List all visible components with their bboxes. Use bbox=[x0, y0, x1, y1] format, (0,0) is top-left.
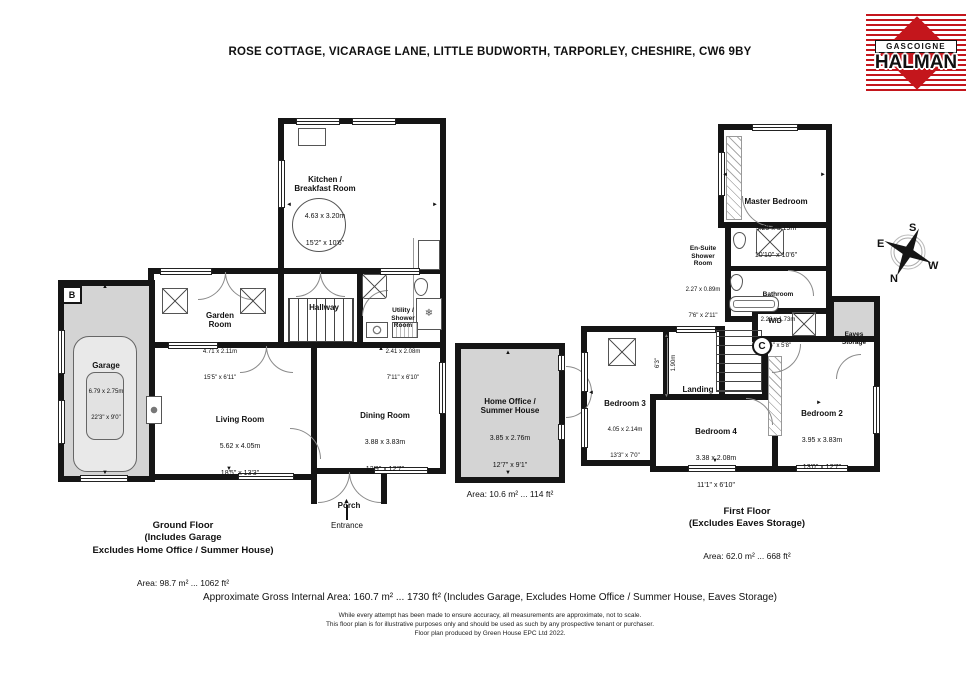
floorplan-page: ROSE COTTAGE, VICARAGE LANE, LITTLE BUDW… bbox=[0, 0, 980, 678]
landing-dim-line bbox=[667, 338, 668, 394]
room-name: Bathroom bbox=[746, 291, 810, 299]
window-icon bbox=[752, 124, 798, 131]
window-icon bbox=[352, 118, 396, 125]
page-title: ROSE COTTAGE, VICARAGE LANE, LITTLE BUDW… bbox=[0, 46, 980, 58]
skylight-icon bbox=[608, 338, 636, 366]
eaves-storage-label: Eaves Storage bbox=[832, 312, 876, 365]
room-name: Garage bbox=[60, 361, 152, 370]
room-name: Utility / Shower Room bbox=[372, 307, 434, 330]
cylinder-label: C bbox=[758, 341, 765, 352]
dimension-arrow-icon: ▼ bbox=[102, 470, 108, 476]
window-icon bbox=[296, 118, 340, 125]
room-imperial: 13'3" x 7'0" bbox=[583, 453, 667, 460]
room-name: Hallway bbox=[294, 303, 354, 312]
room-name: Eaves Storage bbox=[832, 331, 876, 346]
wd-label: W/D bbox=[758, 318, 792, 326]
hallway-label: Hallway bbox=[294, 284, 354, 331]
room-name: Home Office / Summer House bbox=[458, 397, 562, 416]
room-imperial: 7'11" x 6'10" bbox=[372, 375, 434, 382]
disclaimer-line2: This floor plan is for illustrative purp… bbox=[0, 621, 980, 629]
dim-arrow-icon: ▲ bbox=[664, 333, 669, 339]
room-imperial: 22'3" x 9'0" bbox=[60, 415, 152, 422]
logo-bottom-text: HALMAN bbox=[866, 52, 966, 74]
room-imperial: 18'5" x 13'3" bbox=[175, 470, 305, 478]
window-icon bbox=[380, 268, 420, 275]
gross-area-text: Approximate Gross Internal Area: 160.7 m… bbox=[0, 592, 980, 604]
landing-dim-imperial: 6'3" bbox=[655, 341, 661, 385]
room-name: Kitchen / Breakfast Room bbox=[265, 175, 385, 194]
dimension-arrow-icon: ▲ bbox=[102, 284, 108, 290]
room-metric: 6.79 x 2.75m bbox=[60, 389, 152, 396]
dining-label: Dining Room 3.88 x 3.83m 12'9" x 12'7" bbox=[330, 392, 440, 493]
disclaimer-line3: Floor plan produced by Green House EPC L… bbox=[0, 630, 980, 638]
dimension-arrow-icon: ▼ bbox=[712, 458, 718, 464]
compass-n: N bbox=[890, 273, 898, 285]
room-metric: 3.88 x 3.83m bbox=[330, 439, 440, 447]
room-metric: 2.27 x 0.89m bbox=[672, 287, 734, 294]
window-icon bbox=[160, 268, 212, 275]
room-imperial: 15'5" x 6'11" bbox=[178, 375, 262, 382]
dimension-arrow-icon: ▲ bbox=[505, 350, 511, 356]
boiler-label: B bbox=[69, 290, 76, 300]
room-imperial: 13'0" x 12'7" bbox=[766, 464, 878, 472]
room-name: Bedroom 3 bbox=[583, 399, 667, 408]
window-icon bbox=[80, 475, 128, 482]
dimension-arrow-icon: ◄ bbox=[722, 172, 728, 178]
bedroom3-label: Bedroom 3 4.05 x 2.14m 13'3" x 7'0" bbox=[583, 380, 667, 479]
boiler-box: B bbox=[62, 286, 82, 304]
garage-label: Garage 6.79 x 2.75m 22'3" x 9'0" bbox=[60, 342, 152, 441]
room-name: Garden Room bbox=[178, 311, 262, 330]
dimension-arrow-icon: ◄ bbox=[286, 202, 292, 208]
room-metric: 4.05 x 2.14m bbox=[583, 427, 667, 434]
living-label: Living Room 5.62 x 4.05m 18'5" x 13'3" bbox=[175, 396, 305, 497]
first-floor-caption-bold: First Floor (Excludes Eaves Storage) bbox=[592, 506, 902, 531]
garden-label: Garden Room 4.71 x 2.11m 15'5" x 6'11" bbox=[178, 292, 262, 401]
room-metric: 3.95 x 3.83m bbox=[766, 437, 878, 445]
first-floor-caption: First Floor (Excludes Eaves Storage) Are… bbox=[592, 487, 902, 580]
landing-label: Landing bbox=[672, 366, 724, 413]
dimension-arrow-icon: ► bbox=[816, 400, 822, 406]
dimension-arrow-icon: ▲ bbox=[378, 346, 384, 352]
dimension-arrow-icon: ► bbox=[820, 172, 826, 178]
utility-label: Utility / Shower Room 2.41 x 2.08m 7'11"… bbox=[372, 288, 434, 401]
ground-floor-caption-bold: Ground Floor (Includes Garage Excludes H… bbox=[28, 520, 338, 557]
dimension-arrow-icon: ◄ bbox=[588, 390, 594, 396]
room-name: Master Bedroom bbox=[722, 197, 830, 206]
ensuite-label: En-Suite Shower Room 2.27 x 0.89m 7'6" x… bbox=[672, 226, 734, 339]
bedroom2-label: Bedroom 2 3.95 x 3.83m 13'0" x 12'7" bbox=[766, 390, 878, 491]
compass-s: S bbox=[909, 222, 916, 234]
dimension-arrow-icon: ▼ bbox=[505, 470, 511, 476]
room-imperial: 12'9" x 12'7" bbox=[330, 466, 440, 474]
kitchen-sink-icon bbox=[298, 128, 326, 146]
kitchen-label: Kitchen / Breakfast Room 4.63 x 3.20m 15… bbox=[265, 156, 385, 267]
agency-logo: GASCOIGNE HALMAN bbox=[866, 14, 966, 92]
window-icon bbox=[558, 355, 565, 371]
room-metric: 5.62 x 4.05m bbox=[175, 443, 305, 451]
ground-floor-caption-area: Area: 98.7 m² ... 1062 ft² bbox=[28, 578, 338, 588]
entrance-arrowhead-icon: ▲ bbox=[343, 499, 350, 505]
room-name: En-Suite Shower Room bbox=[672, 245, 734, 268]
room-imperial: 7'6" x 2'11" bbox=[672, 313, 734, 320]
dimension-arrow-icon: ▼ bbox=[226, 466, 232, 472]
window-icon bbox=[439, 362, 446, 414]
room-name: Bedroom 4 bbox=[660, 427, 772, 436]
disclaimer-line1: While every attempt has been made to ens… bbox=[0, 612, 980, 620]
room-metric: 3.85 x 2.76m bbox=[458, 435, 562, 443]
room-metric: 3.29 x 3.19m bbox=[722, 225, 830, 233]
room-metric: 4.71 x 2.11m bbox=[178, 349, 262, 356]
room-metric: 4.63 x 3.20m bbox=[265, 213, 385, 221]
room-name: Landing bbox=[672, 385, 724, 394]
room-imperial: 15'2" x 10'6" bbox=[265, 240, 385, 248]
compass-rose-icon: S E W N bbox=[870, 214, 946, 290]
room-imperial: 10'10" x 10'6" bbox=[722, 252, 830, 260]
hob-icon bbox=[418, 240, 440, 270]
ground-floor-caption: Ground Floor (Includes Garage Excludes H… bbox=[28, 501, 338, 607]
cylinder-circle: C bbox=[752, 336, 772, 356]
room-name: Bedroom 2 bbox=[766, 409, 878, 418]
compass-w: W bbox=[928, 260, 939, 272]
room-name: Dining Room bbox=[330, 411, 440, 420]
compass-e: E bbox=[877, 238, 884, 250]
room-imperial: 12'7" x 9'1" bbox=[458, 462, 562, 470]
dimension-arrow-icon: ► bbox=[432, 202, 438, 208]
master-bedroom-label: Master Bedroom 3.29 x 3.19m 10'10" x 10'… bbox=[722, 178, 830, 279]
first-floor-caption-area: Area: 62.0 m² ... 668 ft² bbox=[592, 551, 902, 561]
home-office-area-caption: Area: 10.6 m² ... 114 ft² bbox=[448, 489, 572, 499]
room-name: Living Room bbox=[175, 415, 305, 424]
